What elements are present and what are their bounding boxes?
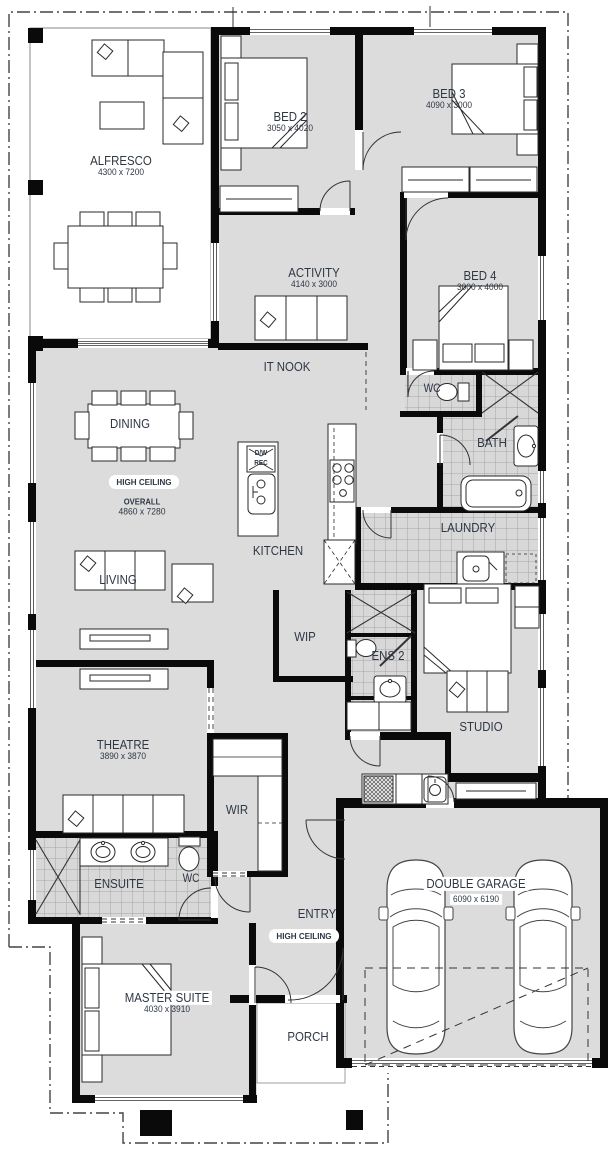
room-label-living: LIVING (99, 573, 137, 587)
kitchen-bench-icon (324, 424, 356, 584)
high-ceiling-badge-living: HIGH CEILING (109, 475, 179, 489)
room-label-porch: PORCH (287, 1030, 328, 1044)
room-label-wc: WC (424, 383, 441, 395)
island-dw-label: D/W (255, 449, 267, 457)
room-label-entry: ENTRY (298, 907, 337, 921)
room-label-alfresco: ALFRESCO4300 x 7200 (90, 154, 152, 178)
room-label-laundry: LAUNDRY (441, 521, 495, 535)
boundary-ticks (233, 6, 430, 30)
room-label-ensuite: ENSUITE (94, 877, 144, 891)
room-label-activity: ACTIVITY4140 x 3000 (288, 266, 339, 290)
high-ceiling-badge-entry: HIGH CEILING (269, 929, 339, 943)
room-label-studio: STUDIO (459, 720, 502, 734)
room-label-dining: DINING (110, 417, 150, 431)
room-label-bed2: BED 23050 x 4020 (267, 110, 313, 134)
room-label-ens2: ENS 2 (371, 649, 404, 663)
room-label-wc-ensuite: WC (183, 873, 200, 885)
room-label-double-garage: DOUBLE GARAGE 6090 x 6190 (424, 877, 528, 905)
activity-sofa-icon (255, 296, 347, 340)
room-label-master-suite: MASTER SUITE4030 x 3910 (122, 991, 212, 1015)
room-label-it-nook: IT NOOK (264, 360, 311, 374)
room-label-bed3: BED 34090 x 3000 (426, 87, 472, 111)
overall-dimension-note: OVERALL 4860 x 7280 (118, 497, 165, 518)
room-label-bath: BATH (477, 436, 507, 450)
room-label-theatre: THEATRE3890 x 3870 (97, 738, 150, 762)
wc-toilet-icon (437, 383, 469, 401)
room-label-bed4: BED 43000 x 4000 (457, 269, 503, 293)
floor-plan: ALFRESCO4300 x 7200 BED 23050 x 4020 BED… (0, 0, 615, 1153)
alfresco-dining-table-icon (54, 212, 177, 302)
island-rec-label: REC (254, 459, 267, 467)
room-label-wir: WIR (226, 803, 248, 817)
ensuite-fittings-icon (80, 837, 200, 871)
room-label-kitchen: KITCHEN (253, 544, 303, 558)
room-label-wip: WIP (294, 630, 316, 644)
